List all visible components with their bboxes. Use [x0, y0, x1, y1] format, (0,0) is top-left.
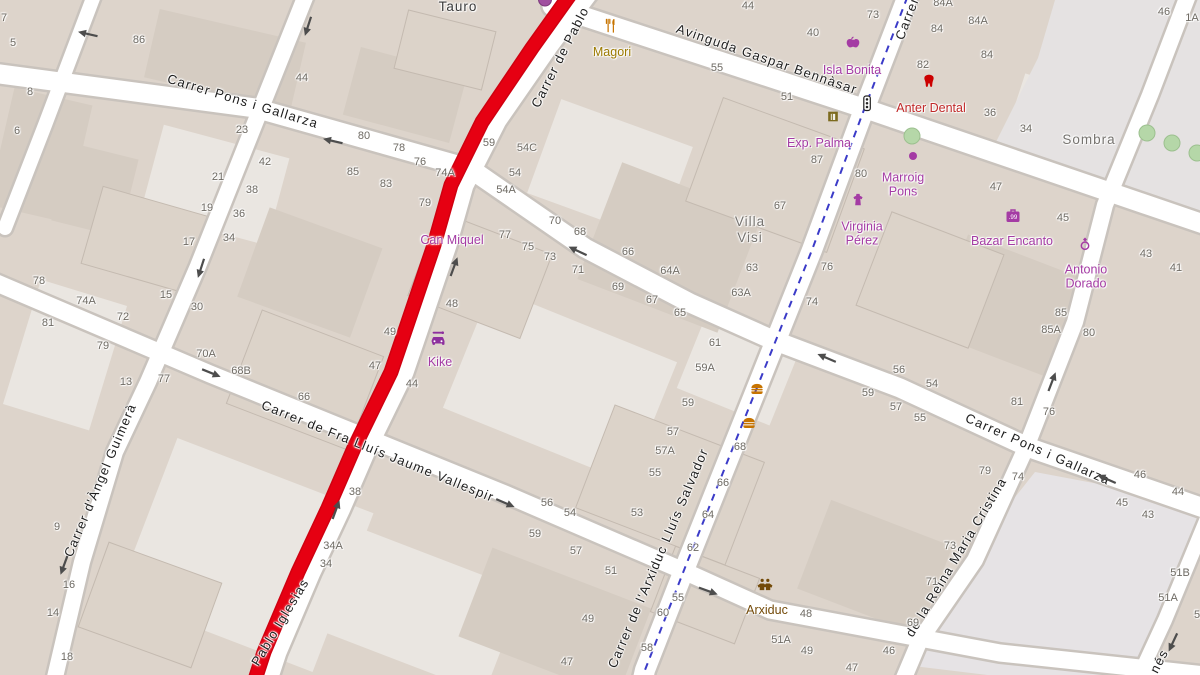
place-label: VillaVisi [735, 214, 765, 246]
house-number: 84A [968, 15, 988, 27]
car-repair-icon [430, 329, 447, 352]
house-number: 56 [893, 364, 905, 376]
house-number: 44 [742, 0, 754, 12]
street-name-label: Carrer Pons i Gallarza [166, 71, 321, 131]
house-number: 46 [1158, 6, 1170, 18]
house-number: 78 [33, 275, 45, 287]
house-number: 59 [862, 387, 874, 399]
house-number: 69 [907, 617, 919, 629]
house-number: 79 [97, 340, 109, 352]
house-number: 59 [529, 528, 541, 540]
poi-label: MarroigPons [882, 171, 924, 200]
house-number: 55 [672, 592, 684, 604]
house-number: 5 [10, 37, 16, 49]
poi-label: Exp. Palma [787, 136, 851, 150]
poi-label: Arxiduc [746, 603, 788, 617]
house-number: 23 [236, 124, 248, 136]
house-number: 51 [605, 565, 617, 577]
house-number: 60 [657, 607, 669, 619]
house-number: 41 [1170, 262, 1182, 274]
house-number: 61 [709, 337, 721, 349]
oneway-arrow-icon [188, 254, 213, 282]
house-number: 57 [667, 426, 679, 438]
house-number: 77 [158, 373, 170, 385]
house-number: 86 [133, 34, 145, 46]
house-number: 6 [14, 125, 20, 137]
house-number: 64 [702, 509, 714, 521]
oneway-arrow-icon [1159, 627, 1185, 656]
house-number: 74A [76, 295, 96, 307]
house-number: 13 [120, 376, 132, 388]
house-number: 45 [1116, 497, 1128, 509]
street-name-label: Carrer d'Àngel Guimerà [61, 401, 139, 559]
house-number: 85 [1055, 307, 1067, 319]
oneway-arrow-icon [319, 129, 346, 152]
traffic-signals-icon [861, 95, 873, 117]
house-number: 65 [674, 307, 686, 319]
house-number: 71 [926, 576, 938, 588]
house-number: 68 [574, 226, 586, 238]
variety-store-icon: .99 [1005, 208, 1021, 228]
house-number: 1A [1185, 12, 1198, 24]
house-number: 55 [649, 467, 661, 479]
house-number: 46 [883, 645, 895, 657]
house-number: 19 [201, 202, 213, 214]
house-number: 84 [981, 49, 993, 61]
house-number: 67 [646, 294, 658, 306]
fast-food-icon [742, 416, 757, 434]
house-number: 57A [655, 445, 675, 457]
gallery-icon [826, 110, 840, 129]
poi-label: VirginiaPérez [841, 220, 882, 249]
house-number: 5 [1194, 609, 1200, 621]
house-number: 51B [1170, 567, 1190, 579]
house-number: 38 [349, 486, 361, 498]
house-number: 76 [821, 261, 833, 273]
house-number: 63A [731, 287, 751, 299]
shop-dot-icon [908, 148, 918, 166]
street-name-label: Carrer de l'Arxiduc Lluís Salvador [605, 446, 712, 670]
house-number: 71 [572, 264, 584, 276]
greengrocer-icon [846, 35, 861, 55]
map-label-overlay: Carrer Pons i GallarzaCarrer Pons i Gall… [0, 0, 1200, 675]
house-number: 83 [380, 178, 392, 190]
fast-food-icon [750, 382, 765, 400]
house-number: 54 [564, 507, 576, 519]
poi-label: Bazar Encanto [971, 234, 1053, 248]
house-number: 59 [682, 397, 694, 409]
house-number: 21 [212, 171, 224, 183]
street-name-label: Carrer Pons i Gallarza [963, 410, 1113, 488]
house-number: 16 [63, 579, 75, 591]
house-number: 73 [867, 9, 879, 21]
house-number: 51 [781, 91, 793, 103]
house-number: 68B [231, 365, 251, 377]
house-number: 57 [570, 545, 582, 557]
house-number: 45 [1057, 212, 1069, 224]
house-number: 76 [414, 156, 426, 168]
shop-circle-icon [537, 0, 553, 13]
street-name-label: de la Reina Maria Cristina [902, 475, 1009, 640]
house-number: 49 [801, 645, 813, 657]
house-number: 8 [27, 86, 33, 98]
house-number: 54 [509, 167, 521, 179]
house-number: 80 [855, 168, 867, 180]
house-number: 57 [890, 401, 902, 413]
house-number: 34 [223, 232, 235, 244]
house-number: 14 [47, 607, 59, 619]
house-number: 67 [774, 200, 786, 212]
house-number: 44 [406, 378, 418, 390]
house-number: 70 [549, 215, 561, 227]
house-number: 59A [695, 362, 715, 374]
house-number: 49 [582, 613, 594, 625]
house-number: 34A [323, 540, 343, 552]
house-number: 51A [771, 634, 791, 646]
house-number: 46 [1134, 469, 1146, 481]
street-name-label: Carrer de Pablo [528, 4, 592, 110]
house-number: 79 [419, 197, 431, 209]
house-number: 75 [522, 241, 534, 253]
house-number: 81 [42, 317, 54, 329]
house-number: 66 [298, 391, 310, 403]
oneway-arrow-icon [197, 361, 226, 387]
jewelry-ring-icon [1078, 236, 1092, 257]
oneway-arrow-icon [563, 237, 592, 263]
house-number: 55 [711, 62, 723, 74]
house-number: 63 [746, 262, 758, 274]
house-number: 74A [435, 167, 455, 179]
house-number: 84A [933, 0, 953, 9]
street-name-label: Avinguda Gaspar Bennàsar [674, 21, 859, 97]
community-icon [757, 578, 774, 597]
house-number: 36 [984, 107, 996, 119]
house-number: 85 [347, 166, 359, 178]
house-number: 9 [54, 521, 60, 533]
house-number: 73 [544, 251, 556, 263]
house-number: 54 [926, 378, 938, 390]
oneway-arrow-icon [74, 22, 101, 45]
house-number: 79 [979, 465, 991, 477]
house-number: 51A [1158, 592, 1178, 604]
house-number: 66 [717, 477, 729, 489]
house-number: 48 [446, 298, 458, 310]
oneway-arrow-icon [694, 579, 723, 604]
oneway-arrow-icon [490, 491, 519, 517]
house-number: 56 [541, 497, 553, 509]
house-number: 55 [914, 412, 926, 424]
svg-text:.99: .99 [1009, 214, 1018, 221]
tooth-icon [922, 74, 937, 94]
house-number: 42 [259, 156, 271, 168]
house-number: 73 [944, 540, 956, 552]
house-number: 36 [233, 208, 245, 220]
house-number: 69 [612, 281, 624, 293]
street-name-label: Pablo Iglesias [248, 576, 312, 669]
house-number: 34 [1020, 123, 1032, 135]
house-number: 81 [1011, 396, 1023, 408]
house-number: 48 [800, 608, 812, 620]
house-number: 47 [990, 181, 1002, 193]
oneway-arrow-icon [442, 253, 467, 282]
house-number: 58 [641, 642, 653, 654]
house-number: 80 [1083, 327, 1095, 339]
house-number: 70A [196, 348, 216, 360]
house-number: 80 [358, 130, 370, 142]
house-number: 44 [296, 72, 308, 84]
house-number: 47 [561, 656, 573, 668]
street-name-label: nés [1147, 647, 1172, 675]
house-number: 87 [811, 154, 823, 166]
house-number: 53 [631, 507, 643, 519]
house-number: 47 [369, 360, 381, 372]
house-number: 54C [517, 142, 537, 154]
poi-label: Can Miquel [420, 233, 483, 247]
place-label: Sombra [1062, 132, 1115, 148]
map-canvas[interactable]: Carrer Pons i GallarzaCarrer Pons i Gall… [0, 0, 1200, 675]
house-number: 54A [496, 184, 516, 196]
house-number: 38 [246, 184, 258, 196]
house-number: 74 [1012, 471, 1024, 483]
oneway-arrow-icon [324, 496, 349, 525]
street-name-label: Carrer de [892, 0, 930, 42]
oneway-arrow-icon [812, 344, 841, 370]
house-number: 17 [183, 236, 195, 248]
house-number: 77 [499, 229, 511, 241]
oneway-arrow-icon [50, 551, 75, 580]
house-number: 66 [622, 246, 634, 258]
house-number: 74 [806, 296, 818, 308]
house-number: 44 [1172, 486, 1184, 498]
place-label: Tauro [439, 0, 478, 15]
house-number: 78 [393, 142, 405, 154]
oneway-arrow-icon [1092, 465, 1121, 491]
house-number: 68 [734, 441, 746, 453]
house-number: 18 [61, 651, 73, 663]
house-number: 82 [917, 59, 929, 71]
poi-label: Kike [428, 355, 452, 369]
house-number: 43 [1142, 509, 1154, 521]
restaurant-icon [603, 18, 618, 38]
house-number: 40 [807, 27, 819, 39]
street-name-label: Carrer de Fra Lluís Jaume Vallespir [259, 397, 496, 504]
house-number: 84 [931, 23, 943, 35]
clothes-icon [851, 193, 865, 212]
house-number: 62 [687, 542, 699, 554]
poi-label: AntonioDorado [1065, 263, 1107, 292]
house-number: 76 [1043, 406, 1055, 418]
house-number: 47 [846, 662, 858, 674]
house-number: 59 [483, 137, 495, 149]
house-number: 7 [1, 12, 7, 24]
oneway-arrow-icon [1040, 368, 1065, 397]
house-number: 49 [384, 326, 396, 338]
house-number: 72 [117, 311, 129, 323]
house-number: 30 [191, 301, 203, 313]
house-number: 85A [1041, 324, 1061, 336]
poi-label: Isla Bonita [823, 63, 881, 77]
oneway-arrow-icon [295, 12, 320, 40]
house-number: 34 [320, 558, 332, 570]
house-number: 43 [1140, 248, 1152, 260]
house-number: 64A [660, 265, 680, 277]
house-number: 15 [160, 289, 172, 301]
poi-label: Anter Dental [896, 101, 965, 115]
poi-label: Magori [593, 45, 631, 59]
